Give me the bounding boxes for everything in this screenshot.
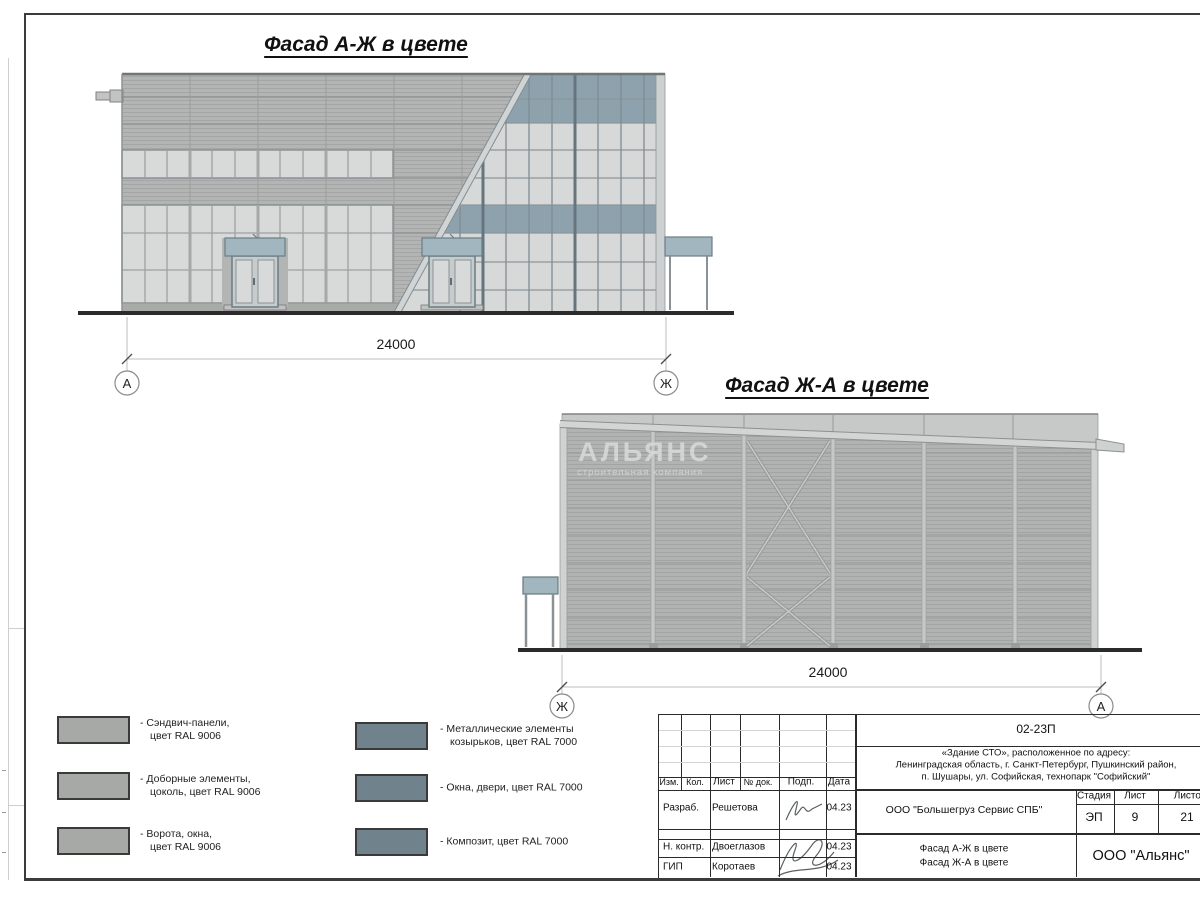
facade2-corner-trim-left [560, 424, 567, 650]
tb-sheets-value: 21 [1180, 810, 1193, 824]
tb-col-izm: Изм. [659, 777, 678, 787]
legend-label-trim: - Доборные элементы, цоколь, цвет RAL 90… [140, 773, 261, 799]
facade-zh-a-drawing: АЛЬЯНС строительная компания 24000 Ж А [518, 414, 1142, 718]
legend-swatch-sandwich [57, 716, 130, 744]
facade1-window-band-upper [122, 150, 393, 178]
watermark-subtitle: строительная компания [577, 467, 703, 478]
tb-stage-value: ЭП [1085, 810, 1102, 824]
tb-doc-number: 02-23П [1016, 722, 1055, 736]
tb-role-gip: ГИП [663, 862, 683, 873]
tb-col-podp: Подп. [788, 777, 815, 788]
canopy-2 [422, 238, 482, 256]
axis-marker-a: А [1097, 699, 1106, 714]
facade1-entrance-2 [421, 234, 483, 310]
legend-swatch-trim [57, 772, 130, 800]
legend-swatch-composite [355, 828, 428, 856]
tb-col-list: Лист [713, 777, 735, 788]
tb-name-gip: Коротаев [712, 862, 755, 873]
legend-swatch-gates [57, 827, 130, 855]
facade1-dimension-value: 24000 [377, 336, 416, 352]
legend-label-sandwich: - Сэндвич-панели, цвет RAL 9006 [140, 717, 229, 743]
facade1-axis-markers: А Ж [115, 371, 678, 395]
tb-stage-label: Стадия [1077, 791, 1111, 802]
tb-address-line1: «Здание СТО», расположенное по адресу: [942, 748, 1131, 759]
axis-marker-zh: Ж [556, 699, 568, 714]
tb-company: ООО "Альянс" [1093, 848, 1190, 864]
facade1-dimension: 24000 [122, 317, 671, 371]
legend-label-canopy-metal: - Металлические элементы козырьков, цвет… [440, 723, 577, 749]
facade1-side-canopy [665, 237, 712, 310]
tb-sheet-title-line1: Фасад А-Ж в цвете [920, 844, 1009, 855]
legend-swatch-windows-doors [355, 774, 428, 802]
tb-sheet-title-line2: Фасад Ж-А в цвете [920, 858, 1009, 869]
canopy-1 [225, 238, 285, 256]
facade-a-zh-drawing: 24000 А Ж [78, 74, 734, 395]
facade2-dimension-value: 24000 [809, 664, 848, 680]
facade1-ground-line [78, 311, 734, 315]
facade1-corner-trim [656, 74, 665, 313]
drawing-sheet: Фасад А-Ж в цвете Фасад Ж-А в цвете [0, 0, 1200, 900]
tb-col-data: Дата [828, 777, 850, 788]
legend-swatch-canopy-metal [355, 722, 428, 750]
facade1-entrance-1 [222, 234, 288, 310]
legend-label-windows-doors: - Окна, двери, цвет RAL 7000 [440, 782, 583, 795]
tb-address-line3: п. Шушары, ул. Софийская, технопарк "Соф… [922, 772, 1151, 783]
facade2-side-canopy [523, 577, 558, 647]
tb-sheets-label: Листов [1174, 791, 1200, 802]
tb-sheet-value: 9 [1132, 810, 1139, 824]
facade2-corner-trim-right [1091, 446, 1098, 650]
tb-address-line2: Ленинградская область, г. Санкт-Петербур… [896, 760, 1177, 771]
watermark: АЛЬЯНС строительная компания [577, 437, 712, 478]
tb-role-nkontr: Н. контр. [663, 842, 704, 853]
facade1-wall-bracket [96, 90, 123, 102]
axis-marker-zh: Ж [660, 376, 672, 391]
tb-client: ООО "Большегруз Сервис СПБ" [886, 804, 1043, 816]
facade2-dimension: 24000 [557, 655, 1106, 694]
axis-marker-a: А [123, 376, 132, 391]
tb-date-razrab: 04.23 [826, 803, 851, 814]
watermark-name: АЛЬЯНС [578, 437, 712, 467]
legend-label-composite: - Композит, цвет RAL 7000 [440, 836, 568, 849]
tb-name-razrab: Решетова [712, 803, 758, 814]
tb-date-nkontr: 04.23 [826, 842, 851, 853]
tb-role-razrab: Разраб. [663, 803, 699, 814]
tb-date-gip: 04.23 [826, 862, 851, 873]
tb-name-nkontr: Двоеглазов [712, 842, 765, 853]
facade2-ground-line [518, 648, 1142, 652]
legend-label-gates: - Ворота, окна, цвет RAL 9006 [140, 828, 221, 854]
tb-sheet-label: Лист [1124, 791, 1146, 802]
tb-col-dok: № док. [744, 777, 773, 787]
tb-col-kol: Кол. [686, 777, 704, 787]
